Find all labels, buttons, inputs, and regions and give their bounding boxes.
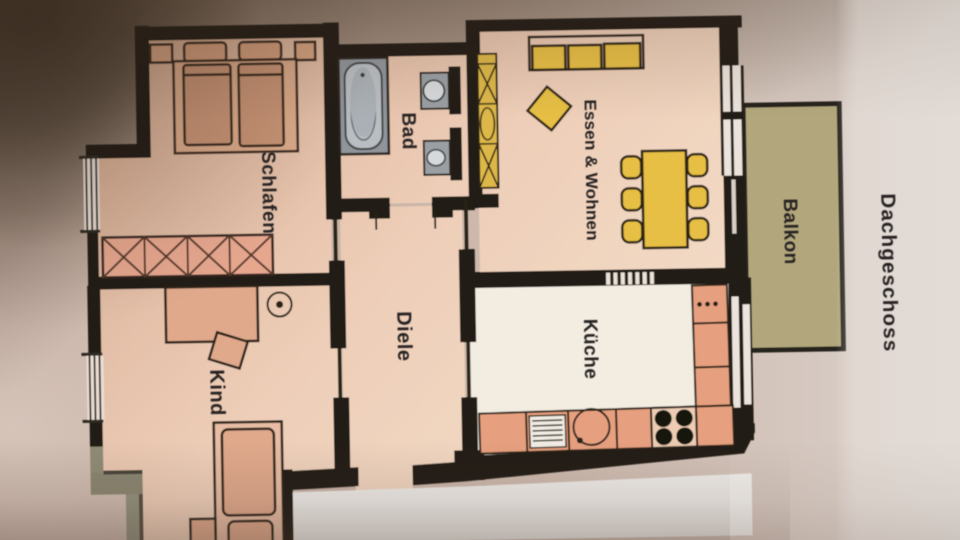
svg-text:Dachgeschoss: Dachgeschoss (876, 193, 902, 352)
svg-text:Kind: Kind (205, 369, 228, 416)
svg-text:Schlafen: Schlafen (257, 151, 279, 235)
svg-text:Balkon: Balkon (779, 198, 801, 265)
svg-text:Bad: Bad (397, 112, 419, 150)
svg-text:Essen & Wohnen: Essen & Wohnen (581, 99, 602, 241)
svg-text:Diele: Diele (392, 311, 415, 362)
svg-text:Küche: Küche (579, 319, 601, 380)
